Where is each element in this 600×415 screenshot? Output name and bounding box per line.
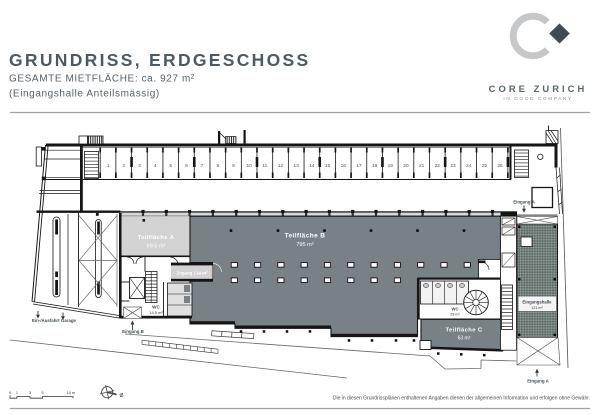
svg-text:121 m²: 121 m² bbox=[531, 306, 543, 310]
svg-text:1: 1 bbox=[107, 163, 110, 169]
svg-text:WC: WC bbox=[152, 305, 160, 310]
svg-text:9: 9 bbox=[232, 163, 235, 169]
svg-text:2: 2 bbox=[122, 163, 125, 169]
svg-text:5: 5 bbox=[169, 163, 172, 169]
svg-text:Eingang B: Eingang B bbox=[122, 329, 144, 334]
svg-text:Teilfläche B: Teilfläche B bbox=[285, 233, 326, 240]
svg-text:Ein-/Ausfahrt Garage: Ein-/Ausfahrt Garage bbox=[32, 318, 76, 323]
svg-text:13: 13 bbox=[294, 163, 300, 169]
svg-text:(Eingangshalle Anteilsmässig): (Eingangshalle Anteilsmässig) bbox=[9, 89, 160, 100]
svg-text:795 m²: 795 m² bbox=[296, 242, 314, 248]
svg-text:18: 18 bbox=[372, 163, 378, 169]
svg-text:69.5 m²: 69.5 m² bbox=[147, 244, 166, 250]
svg-text:11: 11 bbox=[262, 163, 267, 169]
svg-text:0: 0 bbox=[9, 391, 11, 395]
svg-text:6: 6 bbox=[185, 163, 188, 169]
svg-text:4: 4 bbox=[154, 163, 157, 169]
svg-text:1: 1 bbox=[16, 391, 18, 395]
svg-text:24: 24 bbox=[466, 163, 472, 169]
svg-text:14.5 m²: 14.5 m² bbox=[149, 310, 163, 315]
svg-text:22: 22 bbox=[435, 163, 441, 169]
svg-text:21: 21 bbox=[419, 163, 425, 169]
svg-text:Teilfläche A: Teilfläche A bbox=[138, 235, 175, 241]
svg-text:12: 12 bbox=[278, 163, 284, 169]
svg-text:19: 19 bbox=[388, 163, 394, 169]
svg-text:GESAMTE MIETFLÄCHE: ca. 927 m²: GESAMTE MIETFLÄCHE: ca. 927 m² bbox=[9, 73, 195, 85]
svg-text:26: 26 bbox=[497, 163, 503, 169]
svg-text:8: 8 bbox=[216, 163, 219, 169]
svg-text:28 m²: 28 m² bbox=[450, 313, 460, 317]
svg-text:5: 5 bbox=[41, 391, 43, 395]
svg-text:Die in diesen Grundrissplänen: Die in diesen Grundrissplänen enthaltene… bbox=[333, 396, 590, 402]
svg-text:14: 14 bbox=[309, 163, 315, 169]
svg-text:63 m²: 63 m² bbox=[458, 336, 471, 342]
svg-text:GRUNDRISS, ERDGESCHOSS: GRUNDRISS, ERDGESCHOSS bbox=[9, 50, 310, 70]
svg-text:10 m: 10 m bbox=[67, 391, 75, 395]
svg-text:Eingangshalle: Eingangshalle bbox=[522, 300, 552, 305]
svg-text:Eingang A: Eingang A bbox=[527, 379, 549, 384]
svg-text:17: 17 bbox=[356, 163, 362, 169]
svg-text:20: 20 bbox=[403, 163, 409, 169]
svg-text:3: 3 bbox=[138, 163, 141, 169]
svg-text:10: 10 bbox=[246, 163, 252, 169]
svg-text:15: 15 bbox=[325, 163, 331, 169]
svg-text:16: 16 bbox=[341, 163, 347, 169]
svg-text:Zugang | 14 m²: Zugang | 14 m² bbox=[177, 271, 209, 276]
svg-text:WC: WC bbox=[452, 307, 459, 312]
svg-text:Teilfläche C: Teilfläche C bbox=[446, 328, 483, 334]
svg-text:25: 25 bbox=[482, 163, 488, 169]
svg-text:Eingang A: Eingang A bbox=[513, 199, 535, 204]
svg-text:3: 3 bbox=[29, 391, 31, 395]
svg-text:7: 7 bbox=[201, 163, 204, 169]
svg-text:CORE ZURICH: CORE ZURICH bbox=[489, 83, 588, 94]
svg-text:23: 23 bbox=[450, 163, 456, 169]
svg-text:IN GOOD COMPANY: IN GOOD COMPANY bbox=[503, 96, 572, 102]
